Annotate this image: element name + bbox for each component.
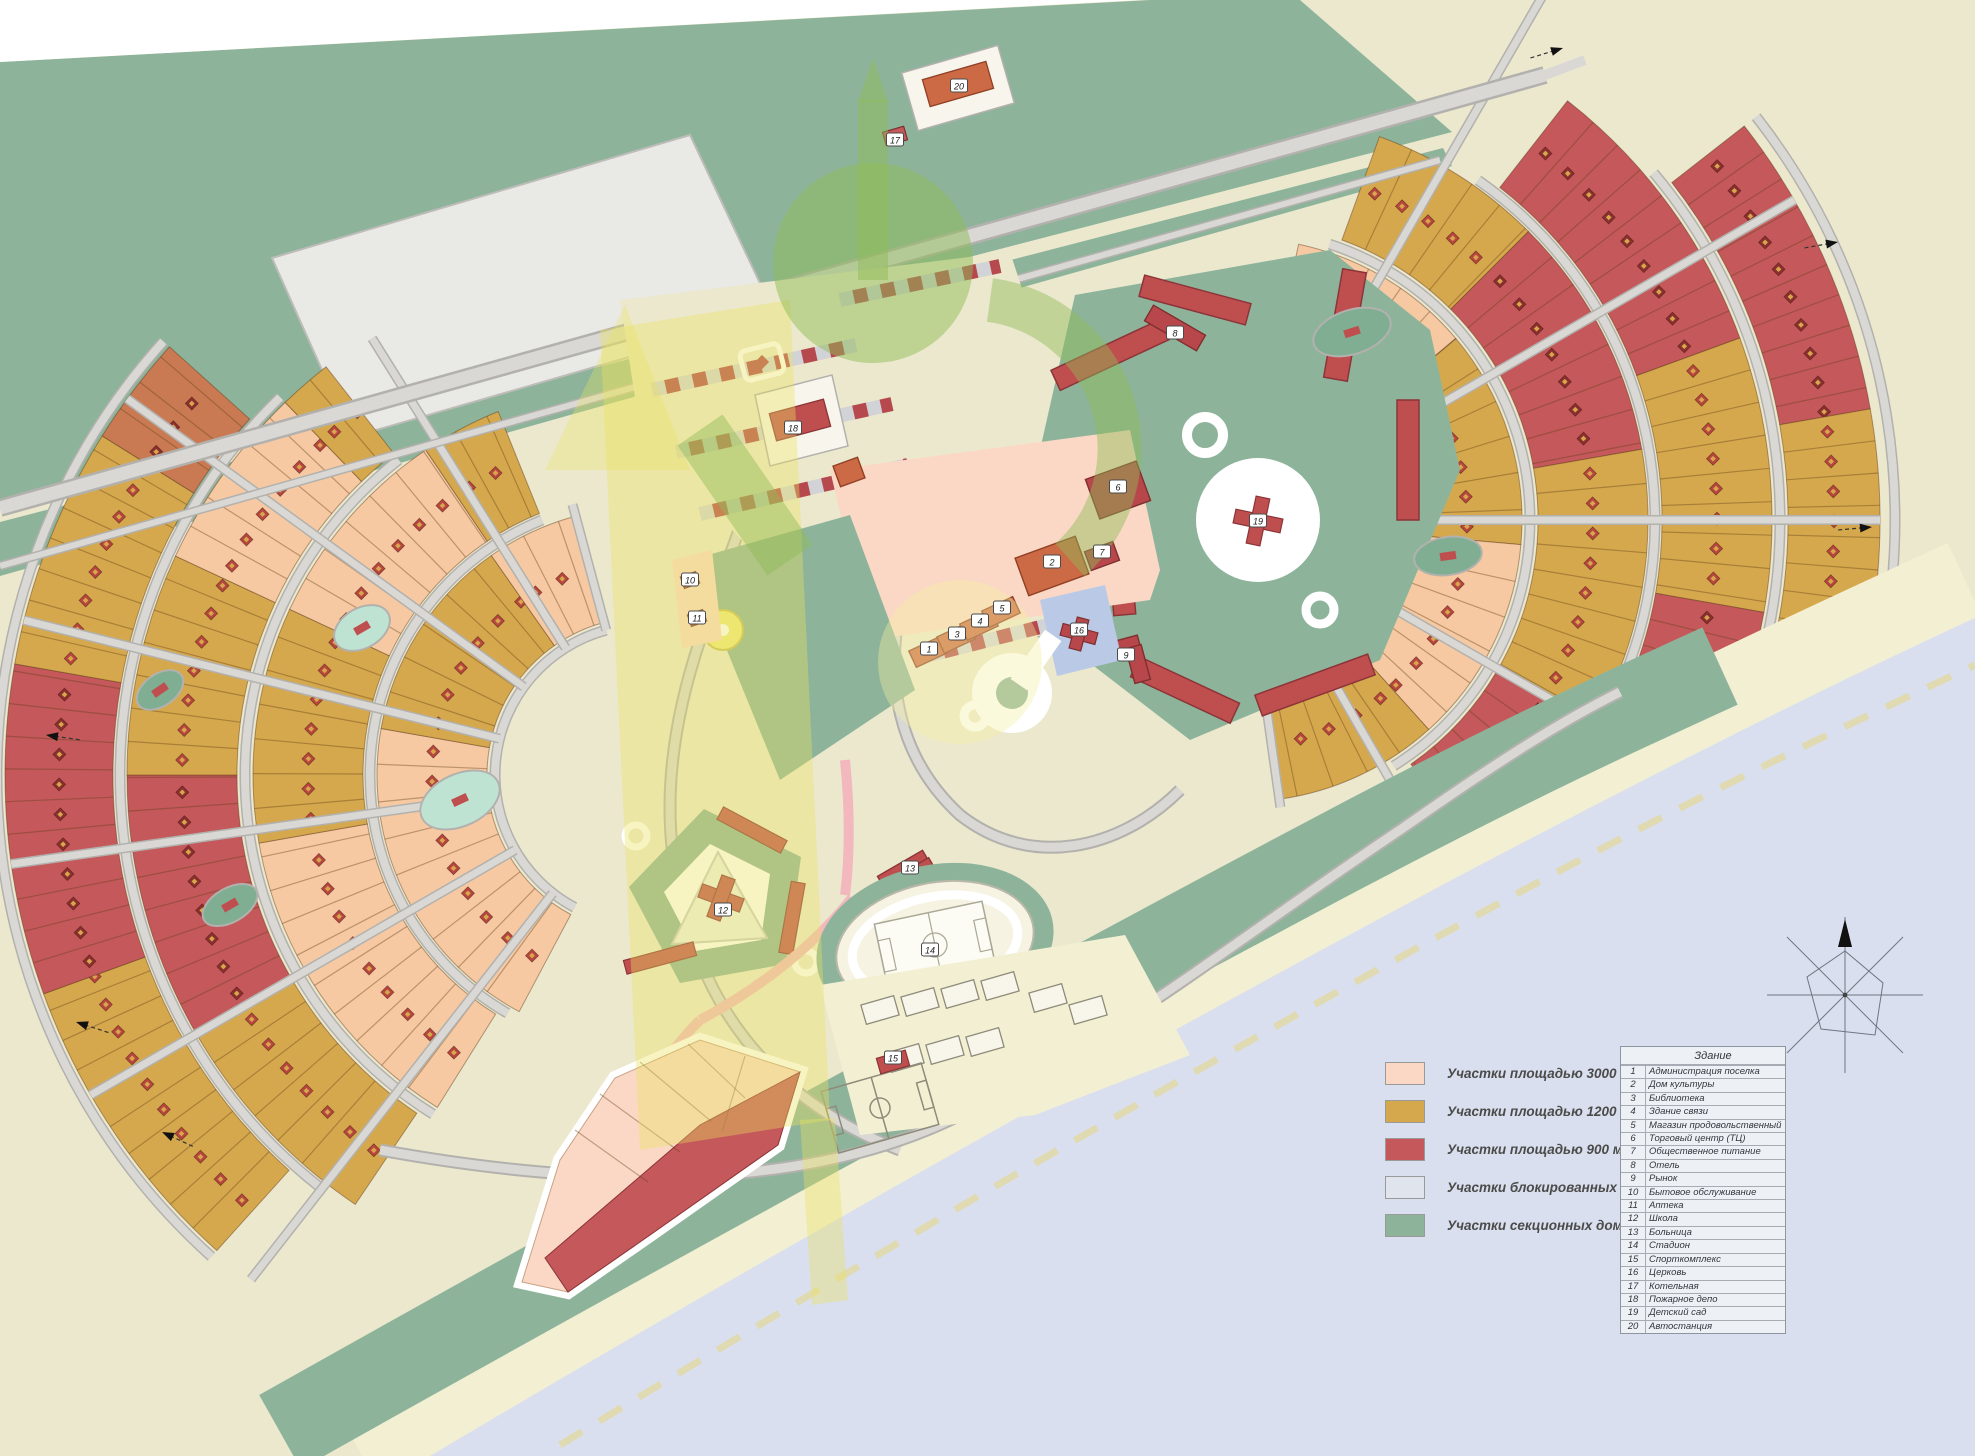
master-plan-map: 1234567891011121314151617181920 Участки … (0, 0, 1975, 1456)
building-number: 5 (1621, 1119, 1646, 1132)
building-marker: 6 (1110, 480, 1127, 493)
building-name: Церковь (1646, 1267, 1786, 1280)
building-number: 12 (1621, 1213, 1646, 1226)
building-marker: 10 (682, 573, 699, 586)
table-row: 13 Больница (1621, 1226, 1785, 1239)
svg-text:19: 19 (1253, 517, 1263, 527)
building-number: 16 (1621, 1267, 1646, 1280)
building-name: Автостанция (1646, 1320, 1786, 1333)
legend-swatch (1385, 1100, 1425, 1123)
building-marker: 9 (1118, 648, 1135, 661)
building-name: Дом культуры (1646, 1079, 1786, 1092)
svg-text:13: 13 (905, 864, 915, 874)
legend-label: Участки площадью 900 м.кв. (1447, 1142, 1645, 1157)
buildings-table: Здание 1 Администрация поселка 2 Дом кул… (1620, 1046, 1786, 1334)
building-marker: 5 (994, 601, 1011, 614)
building-marker: 13 (902, 861, 919, 874)
svg-text:4: 4 (977, 617, 982, 627)
building-marker: 11 (689, 611, 706, 624)
svg-text:18: 18 (788, 424, 798, 434)
building-name: Отель (1646, 1159, 1786, 1172)
table-row: 5 Магазин продовольственный (1621, 1119, 1785, 1132)
svg-text:9: 9 (1123, 651, 1128, 661)
building-marker: 15 (885, 1051, 902, 1064)
building-number: 4 (1621, 1106, 1646, 1119)
svg-text:17: 17 (890, 136, 901, 146)
building-marker: 20 (951, 79, 968, 92)
building-marker: 17 (887, 133, 904, 146)
table-row: 1 Администрация поселка (1621, 1066, 1785, 1079)
table-row: 18 Пожарное депо (1621, 1293, 1785, 1306)
table-row: 11 Аптека (1621, 1200, 1785, 1213)
svg-text:10: 10 (685, 576, 695, 586)
svg-text:8: 8 (1172, 329, 1177, 339)
building-number: 13 (1621, 1226, 1646, 1239)
svg-text:20: 20 (953, 82, 964, 92)
building-marker: 4 (972, 614, 989, 627)
table-row: 9 Рынок (1621, 1173, 1785, 1186)
svg-text:6: 6 (1115, 483, 1120, 493)
building-number: 10 (1621, 1186, 1646, 1199)
building-number: 18 (1621, 1293, 1646, 1306)
building-number: 8 (1621, 1159, 1646, 1172)
building-number: 20 (1621, 1320, 1646, 1333)
building-name: Бытовое обслуживание (1646, 1186, 1786, 1199)
table-row: 12 Школа (1621, 1213, 1785, 1226)
building-number: 11 (1621, 1200, 1646, 1213)
building-number: 2 (1621, 1079, 1646, 1092)
building-marker: 2 (1044, 555, 1061, 568)
building-number: 19 (1621, 1307, 1646, 1320)
building-name: Спорткомплекс (1646, 1253, 1786, 1266)
building-name: Аптека (1646, 1200, 1786, 1213)
building-marker: 18 (785, 421, 802, 434)
table-row: 4 Здание связи (1621, 1106, 1785, 1119)
building-name: Котельная (1646, 1280, 1786, 1293)
svg-text:14: 14 (925, 946, 935, 956)
building-number: 15 (1621, 1253, 1646, 1266)
legend-swatch (1385, 1214, 1425, 1237)
building-number: 3 (1621, 1092, 1646, 1105)
table-row: 8 Отель (1621, 1159, 1785, 1172)
table-row: 7 Общественное питание (1621, 1146, 1785, 1159)
svg-text:3: 3 (954, 630, 959, 640)
table-row: 6 Торговый центр (ТЦ) (1621, 1133, 1785, 1146)
legend-swatch (1385, 1062, 1425, 1085)
svg-text:2: 2 (1048, 558, 1054, 568)
table-row: 15 Спорткомплекс (1621, 1253, 1785, 1266)
table-row: 14 Стадион (1621, 1240, 1785, 1253)
building-marker: 19 (1250, 514, 1267, 527)
table-row: 10 Бытовое обслуживание (1621, 1186, 1785, 1199)
table-row: 20 Автостанция (1621, 1320, 1785, 1333)
building-number: 1 (1621, 1066, 1646, 1079)
svg-text:11: 11 (692, 614, 701, 624)
building-name: Стадион (1646, 1240, 1786, 1253)
svg-text:12: 12 (718, 906, 728, 916)
building-name: Здание связи (1646, 1106, 1786, 1119)
building-marker: 7 (1094, 545, 1111, 558)
building-marker: 3 (949, 627, 966, 640)
buildings-table-header: Здание (1621, 1047, 1785, 1065)
building-number: 7 (1621, 1146, 1646, 1159)
legend-label: Участки секционных домов (1447, 1218, 1639, 1233)
building-number: 9 (1621, 1173, 1646, 1186)
building-name: Администрация поселка (1646, 1066, 1786, 1079)
legend-swatch (1385, 1138, 1425, 1161)
table-row: 19 Детский сад (1621, 1307, 1785, 1320)
compass-rose-icon (1767, 917, 1923, 1073)
building-name: Пожарное депо (1646, 1293, 1786, 1306)
building-marker: 1 (921, 642, 938, 655)
building-number: 17 (1621, 1280, 1646, 1293)
table-row: 2 Дом культуры (1621, 1079, 1785, 1092)
building-marker: 8 (1167, 326, 1184, 339)
legend-swatch (1385, 1176, 1425, 1199)
building-name: Торговый центр (ТЦ) (1646, 1133, 1786, 1146)
table-row: 16 Церковь (1621, 1267, 1785, 1280)
svg-text:15: 15 (888, 1054, 899, 1064)
building-name: Магазин продовольственный (1646, 1119, 1786, 1132)
building-marker: 16 (1071, 623, 1088, 636)
svg-text:16: 16 (1074, 626, 1084, 636)
table-row: 3 Библиотека (1621, 1092, 1785, 1105)
building-name: Рынок (1646, 1173, 1786, 1186)
svg-text:1: 1 (926, 645, 931, 655)
building-name: Детский сад (1646, 1307, 1786, 1320)
building-name: Больница (1646, 1226, 1786, 1239)
building-name: Библиотека (1646, 1092, 1786, 1105)
building-name: Школа (1646, 1213, 1786, 1226)
building-marker: 12 (715, 903, 732, 916)
table-row: 17 Котельная (1621, 1280, 1785, 1293)
building-number: 6 (1621, 1133, 1646, 1146)
building-marker: 14 (922, 943, 939, 956)
building-name: Общественное питание (1646, 1146, 1786, 1159)
building-number: 14 (1621, 1240, 1646, 1253)
